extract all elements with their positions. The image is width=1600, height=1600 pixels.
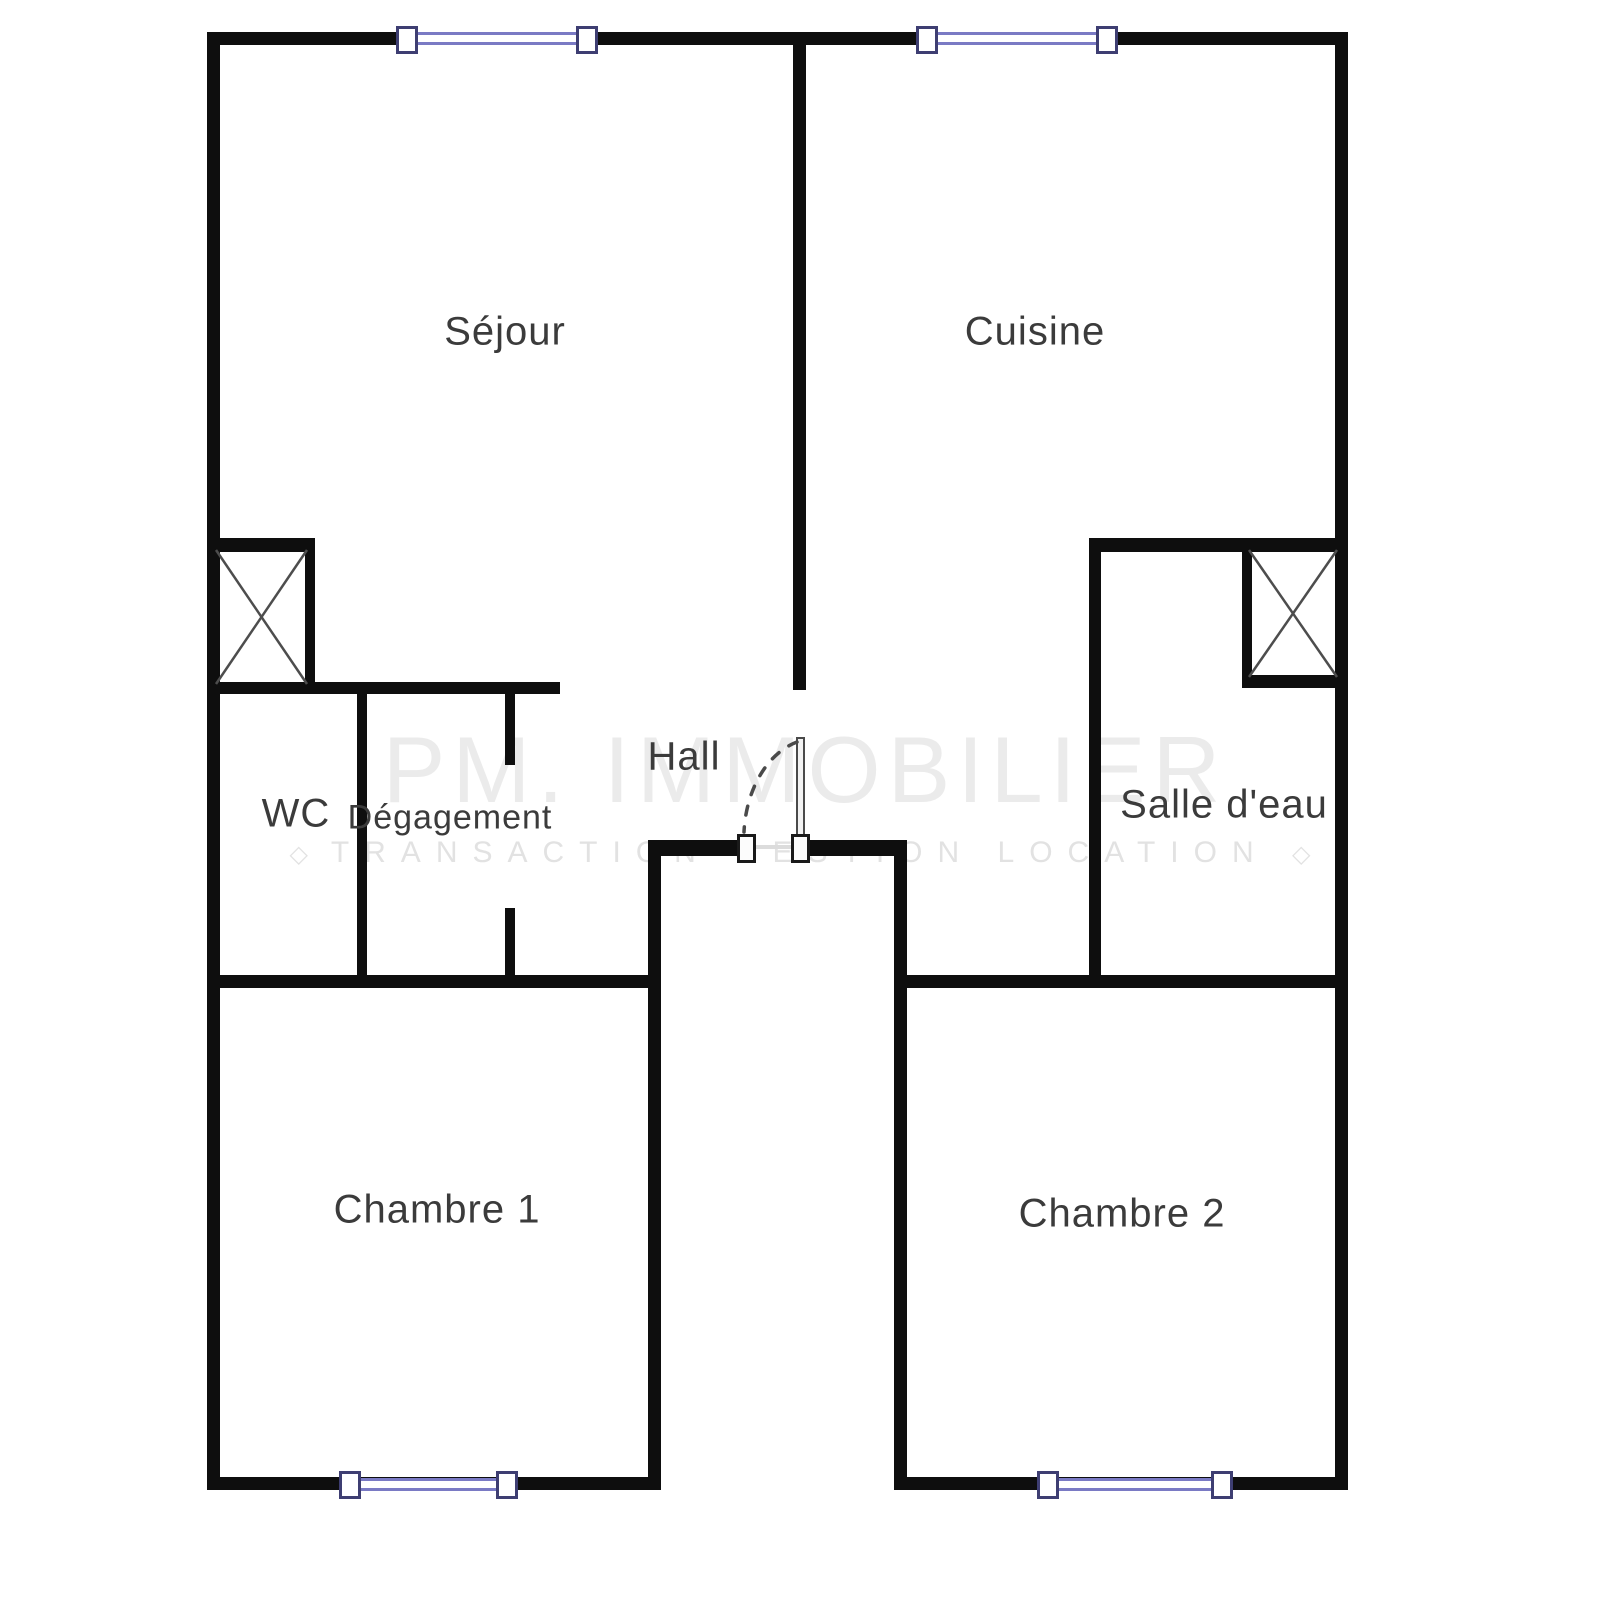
room-label-sejour: Séjour	[444, 310, 566, 355]
watermark-diamond-right-icon: ◇	[1292, 841, 1310, 868]
wall-chambre2-top	[894, 975, 1348, 988]
wall-outer-right	[1335, 32, 1348, 1490]
entrance-door-post-left	[737, 834, 756, 863]
window-sejour-cap-right	[576, 26, 598, 54]
window-chambre2-glass	[1058, 1478, 1213, 1491]
window-chambre1-cap-right	[496, 1471, 518, 1499]
shaft-right-x-icon	[1249, 550, 1337, 677]
wall-chambre1-top	[207, 975, 661, 988]
wall-degagement-right-upper-stub	[505, 682, 515, 765]
window-cuisine-cap-left	[916, 26, 938, 54]
room-label-hall: Hall	[648, 735, 721, 780]
entrance-door-post-right	[791, 834, 810, 863]
wall-hall-bottom-left-segment	[648, 840, 745, 856]
room-label-degagement: Dégagement	[348, 799, 553, 838]
shaft-left-right-wall	[305, 538, 315, 694]
window-chambre1-glass	[360, 1478, 498, 1491]
shaft-right-left-wall	[1242, 552, 1252, 688]
watermark-diamond-left-icon: ◇	[290, 841, 308, 868]
room-label-salledeau: Salle d'eau	[1120, 783, 1328, 828]
shaft-left-x-icon	[216, 550, 307, 684]
window-chambre1-cap-left	[339, 1471, 361, 1499]
wall-hall-bottom-right-segment	[797, 840, 907, 856]
window-chambre2-cap-left	[1037, 1471, 1059, 1499]
room-label-cuisine: Cuisine	[965, 310, 1105, 355]
entrance-door-leaf	[796, 737, 805, 839]
room-label-chambre2: Chambre 2	[1019, 1192, 1226, 1237]
window-sejour-cap-left	[396, 26, 418, 54]
shaft-left-top-wall	[207, 538, 315, 552]
wall-sejour-cuisine-divider	[793, 32, 806, 690]
window-cuisine-glass	[937, 32, 1098, 45]
wall-salledeau-top	[1089, 538, 1348, 552]
window-sejour-glass	[417, 32, 578, 45]
wall-chambre2-left	[894, 840, 907, 1490]
wall-degagement-right-lower-stub	[505, 908, 515, 985]
wall-outer-top	[207, 32, 1348, 45]
window-cuisine-cap-right	[1096, 26, 1118, 54]
wall-salledeau-left	[1089, 538, 1101, 985]
floor-plan: PM. IMMOBILIER ◇ TRANSACTION GESTION LOC…	[0, 0, 1600, 1600]
shaft-right-bottom-wall	[1242, 675, 1348, 688]
wall-outer-left	[207, 32, 220, 1490]
room-label-chambre1: Chambre 1	[334, 1188, 541, 1233]
window-chambre2-cap-right	[1211, 1471, 1233, 1499]
room-label-wc: WC	[262, 792, 331, 837]
wall-chambre1-right	[648, 840, 661, 1490]
